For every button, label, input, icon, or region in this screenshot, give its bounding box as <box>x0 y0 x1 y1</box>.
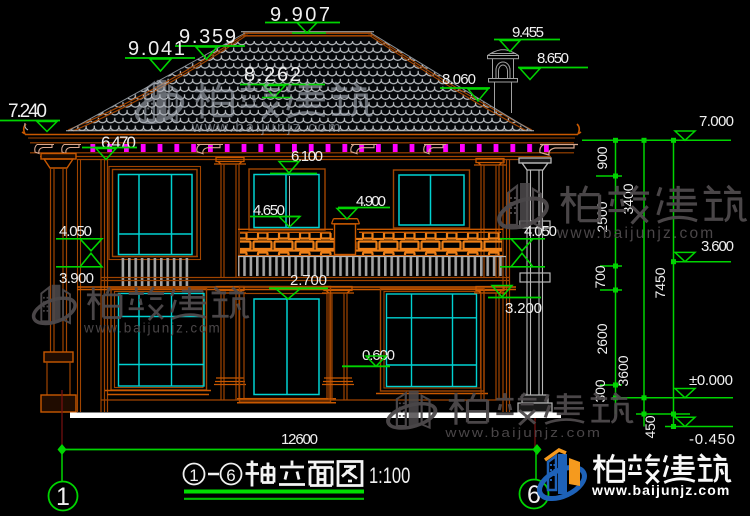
svg-text:9.455: 9.455 <box>512 24 544 41</box>
svg-text:4.050: 4.050 <box>59 223 92 240</box>
svg-text:7.240: 7.240 <box>8 101 47 122</box>
svg-text:450: 450 <box>642 415 658 438</box>
svg-text:700: 700 <box>592 265 608 288</box>
svg-text:8.262: 8.262 <box>244 64 301 86</box>
svg-text:6: 6 <box>226 466 235 485</box>
svg-text:1: 1 <box>189 466 198 485</box>
svg-text:www.baijunjz.com: www.baijunjz.com <box>591 482 730 498</box>
svg-text:9.359: 9.359 <box>179 26 236 48</box>
svg-text:3600: 3600 <box>615 355 631 386</box>
svg-text:2600: 2600 <box>594 323 610 354</box>
svg-text:-0.450: -0.450 <box>689 431 735 448</box>
svg-text:6.100: 6.100 <box>291 148 323 165</box>
svg-text:1: 1 <box>56 483 70 511</box>
svg-text:1:100: 1:100 <box>369 464 410 489</box>
svg-text:±0.000: ±0.000 <box>689 372 733 389</box>
svg-text:900: 900 <box>594 146 610 169</box>
svg-text:12600: 12600 <box>281 431 318 448</box>
svg-text:2.700: 2.700 <box>290 272 327 289</box>
svg-text:8.650: 8.650 <box>537 50 569 67</box>
svg-text:7.000: 7.000 <box>699 113 734 130</box>
svg-text:9.041: 9.041 <box>128 38 185 60</box>
svg-text:7450: 7450 <box>652 267 668 298</box>
svg-text:3.200: 3.200 <box>505 300 542 317</box>
svg-text:8.060: 8.060 <box>442 71 476 88</box>
svg-text:3.900: 3.900 <box>59 270 94 287</box>
